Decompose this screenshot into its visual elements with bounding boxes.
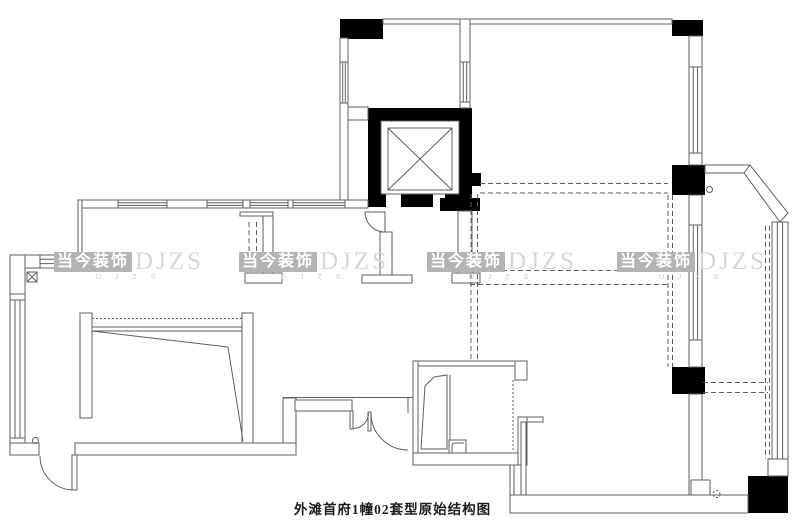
watermark: 当今装饰 DJZS D J Z S	[617, 252, 767, 274]
watermark-brand-badge: 当今装饰	[239, 252, 317, 272]
bedroom-diagonal-lines	[92, 331, 243, 441]
duct-shaft	[421, 375, 447, 449]
drain-hatch-symbol	[27, 272, 37, 282]
column-top-left	[340, 19, 383, 39]
balcony	[705, 165, 788, 476]
lobby-door-swing	[365, 212, 385, 232]
balcony-chamfer-corner	[744, 165, 788, 222]
floor-plan-page: 当今装饰 DJZS D J Z S 当今装饰 DJZS D J Z S 当今装饰…	[0, 0, 805, 531]
watermark-brand-badge: 当今装饰	[427, 252, 505, 272]
watermark-subtext: D J Z S	[96, 274, 161, 281]
column-top-right	[672, 20, 703, 36]
watermark-subtext: D J Z S	[281, 274, 346, 281]
watermark-brand-badge: 当今装饰	[617, 252, 695, 272]
pipe-symbol	[707, 187, 713, 193]
watermark: 当今装饰 DJZS D J Z S	[54, 252, 204, 274]
entry-door-leaf	[72, 455, 77, 490]
watermark: 当今装饰 DJZS D J Z S	[239, 252, 389, 274]
watermark-subtext: D J Z S	[659, 274, 724, 281]
watermark-abbr: DJZS	[698, 252, 767, 272]
wall-step-box	[691, 480, 710, 495]
watermark-brand-badge: 当今装饰	[54, 252, 132, 272]
column-right-lower	[672, 367, 705, 394]
watermark-abbr: DJZS	[508, 252, 577, 272]
watermark-abbr: DJZS	[320, 252, 389, 272]
corridor-door-small-arc	[353, 413, 369, 429]
watermark-abbr: DJZS	[135, 252, 204, 272]
elevator-wall-extension	[440, 198, 480, 211]
stub-wall-a	[240, 212, 273, 216]
entry-door-arc	[40, 456, 74, 490]
elevator-x-mark	[388, 128, 452, 190]
elevator-wall-nub	[472, 173, 481, 186]
column-right-middle	[672, 165, 705, 195]
corridor-door-arc	[371, 413, 408, 450]
drawing-caption: 外滩首府1幢02套型原始结构图	[0, 498, 785, 518]
watermark: 当今装饰 DJZS D J Z S	[427, 252, 577, 274]
watermark-subtext: D J Z S	[469, 274, 534, 281]
elevator-shaft	[368, 108, 481, 211]
